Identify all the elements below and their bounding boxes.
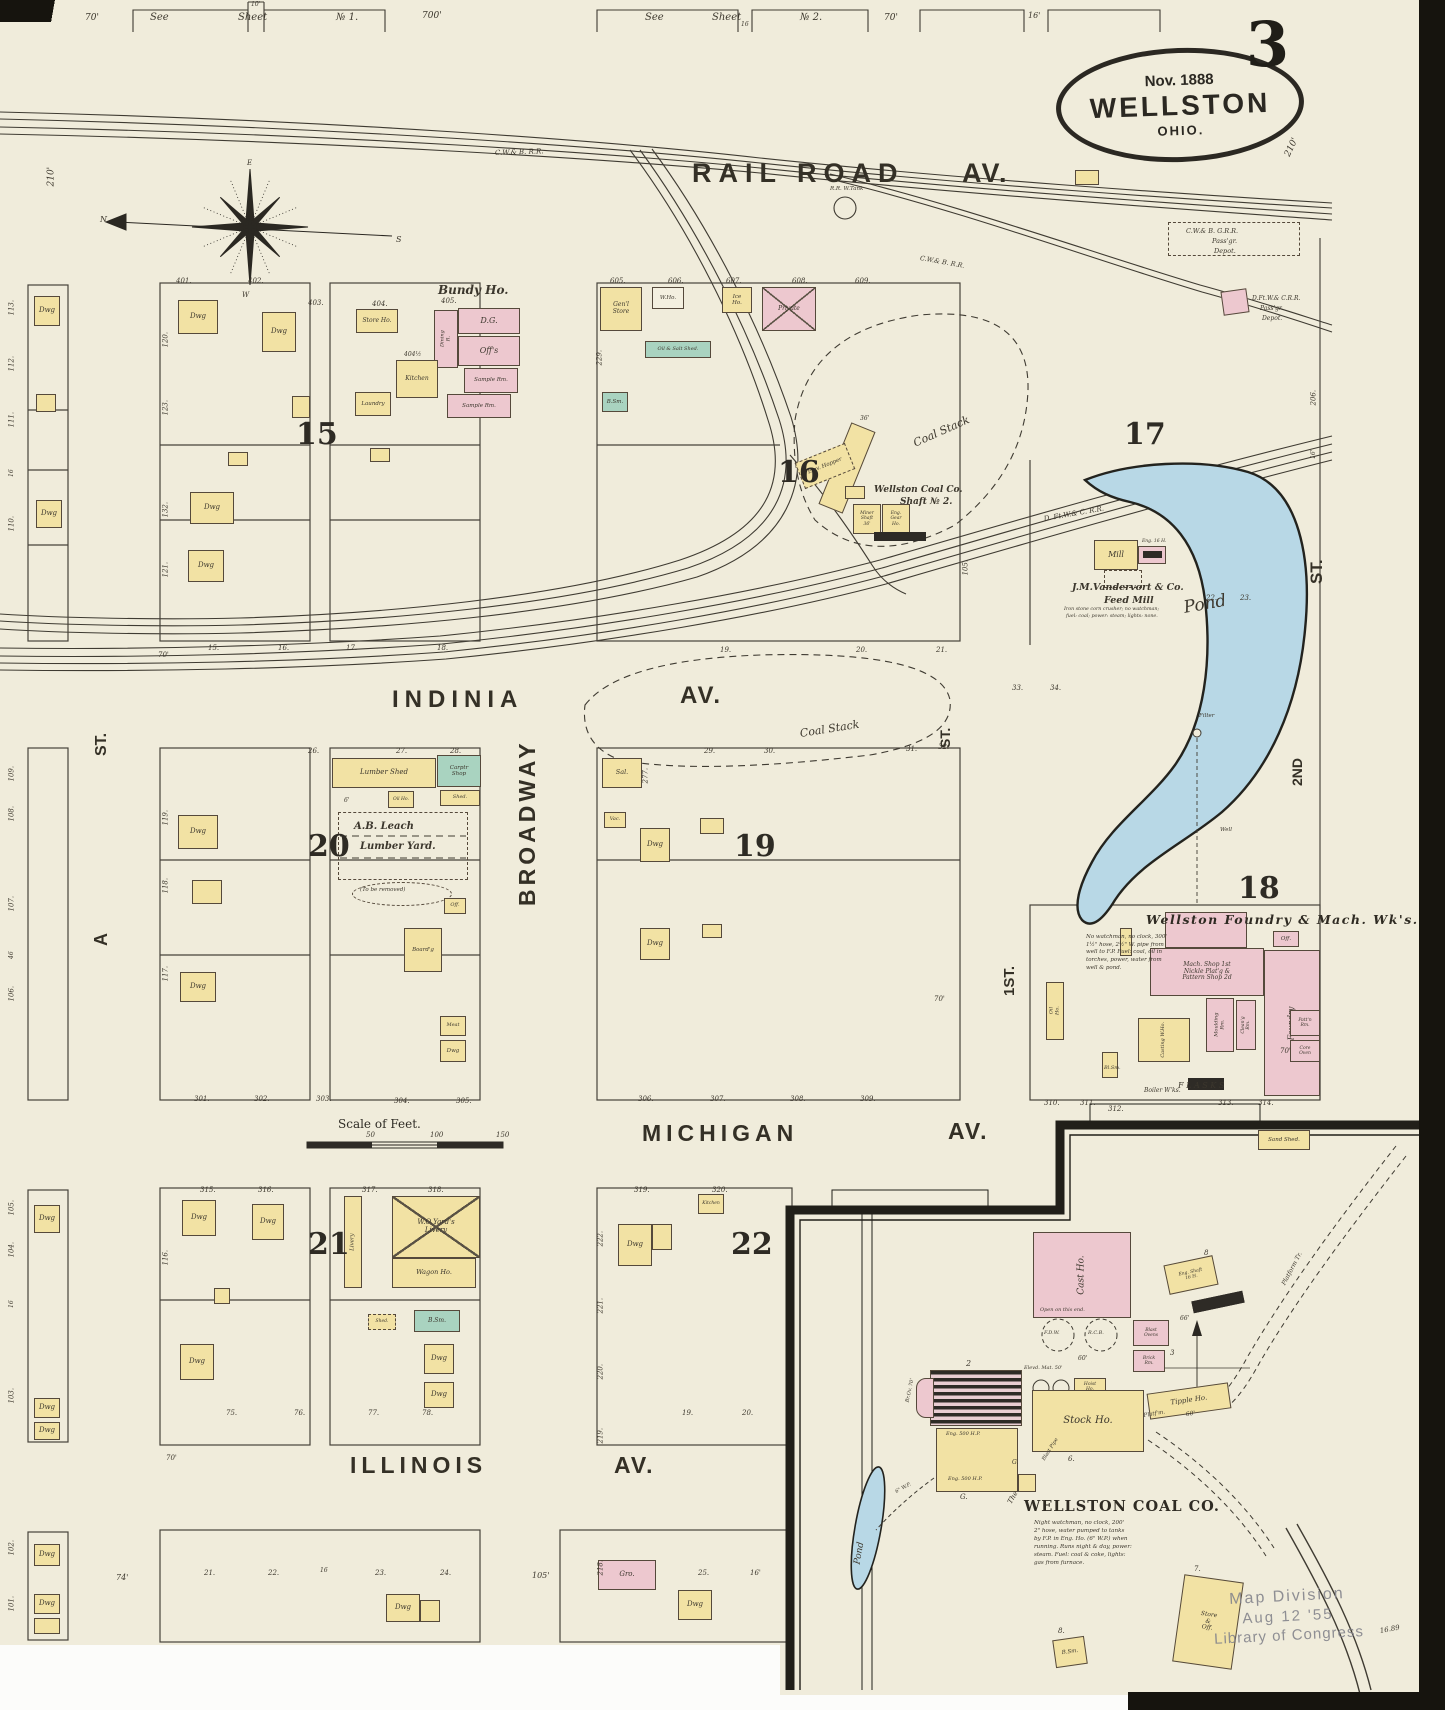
foundry-title: Wellston Foundry & Mach. Wk's. — [1146, 912, 1419, 927]
street-illinois-av: AV. — [614, 1454, 655, 1477]
map-annotation: 101. — [9, 1596, 16, 1612]
map-annotation: 105' — [532, 1572, 549, 1580]
map-annotation: 34. — [1050, 685, 1061, 692]
map-annotation: 319. — [634, 1187, 650, 1194]
building — [874, 532, 926, 541]
building-sample-rm-: Sample Rm. — [464, 368, 518, 393]
map-annotation: 16' — [1028, 12, 1040, 20]
inset-notes: Night watchman, no clock, 200'2" hose, w… — [1034, 1520, 1132, 1568]
map-annotation: 606. — [668, 278, 684, 285]
map-annotation: A.B. Leach — [354, 822, 414, 832]
building-moulding-rm-: Moulding Rm. — [1206, 998, 1234, 1052]
building-off-: Off. — [1273, 931, 1299, 947]
map-annotation: 109. — [9, 766, 16, 782]
map-annotation: 6' — [344, 798, 349, 804]
block-number-20: 20 — [308, 832, 350, 862]
building-dwg: Dwg — [178, 300, 218, 334]
badge-date: Nov. 1888 — [1144, 71, 1213, 90]
building-clean-g-rm-: Clean'g Rm. — [1236, 1000, 1256, 1050]
map-annotation: fuel: coal; power: steam; lights: none. — [1066, 615, 1158, 620]
map-annotation: Boiler W'ks. — [1144, 1088, 1181, 1094]
map-annotation: 403. — [308, 300, 324, 307]
map-annotation: N — [100, 216, 107, 224]
building-gro-: Gro. — [598, 1560, 656, 1590]
map-annotation: 19. — [682, 1410, 693, 1417]
map-annotation: 21. — [204, 1570, 215, 1577]
map-annotation: 111. — [9, 412, 16, 428]
building-b-sm-: B.Sm. — [414, 1310, 460, 1332]
map-annotation: 309. — [860, 1096, 876, 1103]
building-laundry: Laundry — [355, 392, 391, 416]
map-annotation: (To be removed) — [360, 888, 405, 894]
building — [1075, 170, 1099, 185]
building-private: Private — [762, 287, 816, 331]
map-annotation: 700' — [422, 12, 442, 21]
building-b-sm-: B.Sm. — [1052, 1636, 1088, 1668]
map-annotation: 20. — [856, 647, 867, 654]
map-annotation: Scale of Feet. — [338, 1118, 421, 1130]
map-annotation: 70' — [934, 996, 945, 1003]
map-annotation: 70' — [884, 14, 898, 23]
map-annotation: 206. — [1311, 390, 1318, 406]
sheet-number: 3 — [1246, 14, 1289, 76]
building — [1220, 288, 1249, 315]
map-annotation: Wellston Coal Co. — [874, 486, 963, 495]
building-blast-ovens: Blast Ovens — [1133, 1320, 1169, 1346]
building-carptr-shop: Carptr Shop — [437, 755, 481, 787]
map-annotation: Pass'gr. — [1212, 238, 1237, 245]
building-sal-: Sal. — [602, 758, 642, 788]
block-number-22: 22 — [731, 1230, 773, 1260]
map-annotation: Bl.Sm. — [1104, 1066, 1121, 1071]
foundry-notes: No watchman, no clock, 300'1½" hose, 2½"… — [1086, 934, 1167, 972]
map-annotation: 607. — [726, 278, 742, 285]
map-annotation: 320. — [712, 1187, 728, 1194]
map-annotation: Eng. 500 H.P. — [946, 1432, 980, 1437]
building-w-ho-: W.Ho. — [652, 287, 684, 309]
map-annotation: Elevd. Mat. 50' — [1024, 1366, 1062, 1371]
building-oil-ho-: Oil Ho. — [388, 791, 414, 808]
building-dwg: Dwg — [640, 828, 670, 862]
map-annotation: 303. — [316, 1096, 332, 1103]
building — [930, 1370, 1022, 1426]
map-annotation: Filter — [1199, 714, 1214, 720]
foundry-note-line-1: No watchman, no clock, 300' — [1086, 934, 1167, 942]
map-annotation: 113. — [9, 300, 16, 316]
map-annotation: 3 — [1170, 1350, 1174, 1357]
map-annotation: 78. — [422, 1410, 433, 1417]
map-annotation: 76. — [294, 1410, 305, 1417]
building-stock-ho-: Stock Ho. — [1032, 1390, 1144, 1452]
map-annotation: 107. — [9, 896, 16, 912]
street-first: 1ST. — [1002, 966, 1017, 996]
map-annotation: 110. — [9, 516, 16, 532]
street-first-st: ST. — [938, 728, 952, 748]
map-annotation: 60' — [1078, 1356, 1087, 1362]
map-annotation: 33. — [1012, 685, 1023, 692]
map-annotation: G. — [1012, 1460, 1019, 1466]
map-annotation: 23. — [1240, 595, 1251, 602]
map-annotation: 50 — [366, 1132, 375, 1139]
foundry-note-line-3: well to F.P. Fuel: coal, oil in — [1086, 949, 1167, 957]
building-dwg: Dwg — [182, 1200, 216, 1236]
to-be-removed-outline — [352, 882, 452, 906]
building-meat: Meat — [440, 1016, 466, 1036]
map-annotation: 105. — [9, 1200, 16, 1216]
street-rail-road-av: AV. — [962, 160, 1009, 187]
block-number-16: 16 — [778, 458, 820, 488]
map-annotation: № 1. — [336, 13, 358, 23]
map-annotation: 46 — [9, 951, 15, 959]
street-indinia-av: AV. — [680, 684, 722, 708]
building — [845, 486, 865, 499]
map-annotation: Pass'gr. — [1260, 306, 1283, 312]
map-annotation: 306. — [638, 1096, 654, 1103]
block-number-21: 21 — [308, 1230, 350, 1260]
inset-note-line-4: running. Runs night & day, power: — [1034, 1544, 1132, 1552]
foundry-note-line-2: 1½" hose, 2½" W. pipe from — [1086, 942, 1167, 950]
building — [292, 396, 310, 418]
map-annotation: 10' — [251, 2, 260, 8]
scale-bar — [307, 1142, 503, 1148]
building-dwg: Dwg — [34, 1544, 60, 1566]
building — [214, 1288, 230, 1304]
map-annotation: 26. — [308, 748, 319, 755]
building-kitchen: Kitchen — [396, 360, 438, 398]
building-dwg: Dwg — [188, 550, 224, 582]
map-annotation: 23. — [375, 1570, 386, 1577]
map-annotation: 404½ — [404, 352, 421, 358]
map-annotation: C.W.& B. G.R.R. — [1186, 228, 1238, 235]
street-indinia: INDINIA — [392, 688, 523, 712]
map-annotation: 229. — [597, 350, 604, 366]
map-annotation: 609. — [855, 278, 871, 285]
map-annotation: 106. — [9, 986, 16, 1002]
map-annotation: E — [247, 160, 252, 167]
scan-edge-right — [1419, 0, 1445, 1692]
map-annotation: 304. — [394, 1098, 410, 1105]
map-annotation: 132. — [163, 502, 170, 518]
map-annotation: 16' — [750, 1570, 761, 1577]
building — [652, 1224, 672, 1250]
inset-note-line-3: by F.P. in Eng. Ho. (6" W.P.) when — [1034, 1536, 1132, 1544]
map-annotation: 6. — [1068, 1456, 1075, 1463]
map-annotation: № 2. — [800, 13, 822, 23]
street-illinois: ILLINOIS — [350, 1454, 487, 1477]
foundry-note-line-4: torches, power, water from — [1086, 957, 1167, 965]
building — [700, 818, 724, 834]
inset-title: WELLSTON COAL CO. — [1024, 1498, 1220, 1515]
building-patt-n-rm-: Patt'n Rm. — [1290, 1010, 1320, 1036]
map-annotation: Feed Mill — [1104, 596, 1154, 606]
map-annotation: 102. — [9, 1540, 16, 1556]
inset-note-line-1: Night watchman, no clock, 200' — [1034, 1520, 1132, 1528]
building — [1143, 551, 1162, 558]
map-annotation: 70' — [166, 1455, 177, 1462]
map-annotation: Well — [1220, 828, 1232, 834]
map-annotation: 311. — [1080, 1100, 1096, 1107]
map-annotation: 74' — [116, 1574, 128, 1582]
building-dwg: Dwg — [678, 1590, 712, 1620]
building-off-: Off. — [444, 898, 466, 914]
map-annotation: 8. — [1058, 1628, 1065, 1635]
map-annotation: 312. — [1108, 1106, 1124, 1113]
map-annotation: 16 — [741, 22, 749, 28]
building — [36, 394, 56, 412]
map-annotation: 66' — [1180, 1316, 1189, 1322]
building-core-oven: Core Oven — [1290, 1040, 1320, 1062]
map-annotation: 16. — [278, 645, 289, 652]
map-geometry — [0, 0, 1445, 1710]
building-dwg: Dwg — [34, 1398, 60, 1418]
sanborn-map-sheet: DwgDwgDwgDwgDwgDwgStore Ho.Dining R.D.G.… — [0, 0, 1445, 1710]
street-michigan: MICHIGAN — [642, 1122, 798, 1145]
map-annotation: 316. — [258, 1187, 274, 1194]
building-shed-: Shed. — [440, 790, 480, 806]
map-annotation: 220. — [598, 1364, 605, 1380]
building — [936, 1428, 1018, 1492]
building-dwg: Dwg — [34, 296, 60, 326]
map-annotation: 20. — [742, 1410, 753, 1417]
map-annotation: 70' — [1280, 1048, 1291, 1055]
building-d-g-: D.G. — [458, 308, 520, 334]
map-annotation: 308. — [790, 1096, 806, 1103]
building-oil-ho-: Oil Ho. — [1046, 982, 1064, 1040]
map-annotation: 70' — [158, 652, 169, 659]
map-annotation: Depot. — [1214, 248, 1236, 255]
building — [702, 924, 722, 938]
map-annotation: 24. — [440, 1570, 451, 1577]
map-annotation: 605. — [610, 278, 626, 285]
building-oil-salt-shed-: Oil & Salt Shed. — [645, 341, 711, 358]
foundry-note-line-5: well & pond. — [1086, 965, 1167, 973]
map-annotation: R.C.B. — [1088, 1331, 1104, 1336]
building-store-ho-: Store Ho. — [356, 309, 398, 333]
building — [1018, 1474, 1036, 1492]
map-annotation: 19. — [720, 647, 731, 654]
map-annotation: 116. — [163, 1250, 170, 1266]
map-annotation: 210' — [48, 167, 57, 187]
building-dwg: Dwg — [262, 312, 296, 352]
block-number-18: 18 — [1238, 874, 1280, 904]
map-annotation: Eng. 500 H.P. — [948, 1477, 982, 1482]
map-annotation: 118. — [163, 878, 170, 894]
map-annotation: 301. — [194, 1096, 210, 1103]
map-annotation: 221. — [598, 1298, 605, 1314]
map-annotation: 310. — [1044, 1100, 1060, 1107]
inset-note-line-2: 2" hose, water pumped to tanks — [1034, 1528, 1132, 1536]
map-annotation: 108. — [9, 806, 16, 822]
map-annotation: 16 — [9, 469, 15, 477]
map-annotation: Bundy Ho. — [438, 284, 508, 296]
map-annotation: 16 — [9, 1300, 15, 1308]
map-annotation: 317. — [362, 1187, 378, 1194]
building-vac-: Vac. — [604, 812, 626, 828]
badge-state: OHIO. — [1157, 122, 1204, 139]
map-annotation: 117. — [163, 966, 170, 982]
building-dwg: Dwg — [180, 1344, 214, 1380]
building-dwg: Dwg — [424, 1344, 454, 1374]
map-annotation: J.M.Vandervort & Co. — [1072, 583, 1184, 593]
map-annotation: 150 — [496, 1132, 509, 1139]
map-annotation: G. — [960, 1494, 968, 1501]
map-annotation: 16' — [1311, 450, 1317, 459]
building-off-s: Off's — [458, 336, 520, 366]
block-number-15: 15 — [296, 420, 338, 450]
map-annotation: W — [242, 292, 249, 299]
building-casting-w-ho-: Casting W.Ho. — [1138, 1018, 1190, 1062]
building-dwg: Dwg — [440, 1040, 466, 1062]
building-brick-rm-: Brick Rm. — [1133, 1350, 1165, 1372]
map-annotation: 608. — [792, 278, 808, 285]
map-annotation: See — [150, 13, 169, 23]
map-annotation: 8 — [1204, 1250, 1208, 1257]
map-annotation: 120. — [163, 332, 170, 348]
building-dwg: Dwg — [190, 492, 234, 524]
building-board-g: Board'g — [404, 928, 442, 972]
block-number-17: 17 — [1124, 420, 1166, 450]
map-annotation: Iron stone corn crusher; no watchman; — [1064, 608, 1159, 613]
map-annotation: D.Ft.W.& C.R.R. — [1252, 296, 1300, 302]
street-second-st: ST. — [1308, 559, 1325, 584]
map-annotation: 315. — [200, 1187, 216, 1194]
map-annotation: 7. — [1194, 1566, 1201, 1573]
map-annotation: 218. — [598, 1560, 605, 1576]
map-annotation: 222. — [598, 1231, 605, 1247]
building-kitchen: Kitchen — [698, 1194, 724, 1214]
building-wagon-ho-: Wagon Ho. — [392, 1258, 476, 1288]
building — [370, 448, 390, 462]
street-a-st: ST. — [94, 733, 110, 756]
map-annotation: Shaft № 2. — [900, 498, 952, 507]
library-stamp: Map Division Aug 12 '55 Library of Congr… — [1197, 1583, 1380, 1648]
building-dwg: Dwg — [640, 928, 670, 960]
building-dwg: Dwg — [34, 1422, 60, 1440]
map-annotation: 402. — [248, 278, 264, 285]
map-annotation: 22. — [268, 1570, 279, 1577]
scan-edge-topleft — [0, 0, 96, 22]
map-annotation: Depot. — [1262, 316, 1282, 322]
map-annotation: 60' — [1186, 1411, 1196, 1418]
map-annotation: 121. — [163, 562, 170, 578]
building-dwg: Dwg — [424, 1382, 454, 1408]
map-annotation: 404. — [372, 301, 388, 308]
block-number-19: 19 — [734, 832, 776, 862]
street-broadway: BROADWAY — [516, 739, 539, 906]
map-annotation: 105. — [963, 560, 970, 576]
building — [228, 452, 248, 466]
map-annotation: 405. — [441, 298, 457, 305]
map-annotation: 123. — [163, 400, 170, 416]
map-annotation: 18. — [437, 645, 448, 652]
building-dwg: Dwg — [252, 1204, 284, 1240]
map-annotation: 119. — [163, 810, 170, 826]
map-annotation: 16 — [320, 1568, 328, 1574]
building-w-o-yard-s-livery: W.O.Yard's Livery — [392, 1196, 480, 1258]
street-rail-road: RAIL ROAD — [692, 160, 905, 187]
street-second: 2ND — [1290, 758, 1304, 786]
map-annotation: 401. — [176, 278, 192, 285]
map-annotation: 112. — [9, 356, 16, 372]
building — [420, 1600, 440, 1622]
building-lumber-shed: Lumber Shed — [332, 758, 436, 788]
building-sample-rm-: Sample Rm. — [447, 394, 511, 418]
building-dwg: Dwg — [36, 500, 62, 528]
map-annotation: 100 — [430, 1132, 443, 1139]
map-annotation: 28. — [450, 748, 461, 755]
inset-note-line-5: steam. Fuel: coal & coke, lights: — [1034, 1552, 1132, 1560]
building-eng-gear-ho-: Eng. Gear Ho. — [882, 504, 910, 534]
pond-shape — [1077, 464, 1306, 924]
map-annotation: F.D.W. — [1044, 1331, 1060, 1336]
building-ice-ho-: Ice Ho. — [722, 287, 752, 313]
building-dwg: Dwg — [34, 1594, 60, 1614]
street-a: A — [92, 933, 110, 946]
building-gen-l-store: Gen'l Store — [600, 287, 642, 331]
map-annotation: Sheet — [238, 13, 267, 23]
building-b-sm-: B.Sm. — [602, 392, 628, 412]
map-annotation: 307. — [710, 1096, 726, 1103]
map-annotation: 31. — [906, 746, 917, 753]
map-annotation: 305. — [456, 1098, 472, 1105]
inset-note-line-6: gas from furnace. — [1034, 1560, 1132, 1568]
map-annotation: 2 — [966, 1360, 971, 1368]
building — [916, 1378, 934, 1418]
map-annotation: 104. — [9, 1242, 16, 1258]
map-annotation: S — [396, 236, 401, 244]
map-annotation: 30. — [764, 748, 775, 755]
map-annotation: Open on this end. — [1040, 1308, 1085, 1313]
building-shed-: Shed. — [368, 1314, 396, 1330]
building — [192, 880, 222, 904]
building-cast-ho-: Cast Ho. — [1033, 1232, 1131, 1318]
building-dwg: Dwg — [180, 972, 216, 1002]
building — [34, 1618, 60, 1634]
badge-city: WELLSTON — [1089, 87, 1271, 125]
map-annotation: 27. — [396, 748, 407, 755]
map-annotation: 219. — [598, 1428, 605, 1444]
building-dwg: Dwg — [34, 1205, 60, 1233]
building-sand-shed-: Sand Shed. — [1258, 1130, 1310, 1150]
street-michigan-av: AV. — [948, 1120, 989, 1143]
map-annotation: 25. — [698, 1570, 709, 1577]
map-annotation: See — [645, 13, 664, 23]
map-annotation: 17. — [346, 645, 357, 652]
building-mach-shop-1st-nickle-plat-g-pattern-shop-2d: Mach. Shop 1st Nickle Plat'g & Pattern S… — [1150, 948, 1264, 996]
map-annotation: 77. — [368, 1410, 379, 1417]
map-annotation: 103. — [9, 1388, 16, 1404]
map-annotation: 29. — [704, 748, 715, 755]
building-dwg: Dwg — [386, 1594, 420, 1622]
map-annotation: 277. — [643, 768, 650, 784]
map-annotation: 313. — [1218, 1100, 1234, 1107]
building-mill: Mill — [1094, 540, 1138, 570]
map-annotation: Lumber Yard. — [360, 842, 436, 852]
map-annotation: 21. — [936, 647, 947, 654]
map-annotation: Eng. 16 H. — [1142, 540, 1166, 545]
map-annotation: 75. — [226, 1410, 237, 1417]
map-annotation: Sheet — [712, 13, 741, 23]
map-annotation: 36' — [860, 416, 869, 422]
map-annotation: 302. — [254, 1096, 270, 1103]
map-annotation: 15. — [208, 645, 219, 652]
building-dwg: Dwg — [618, 1224, 652, 1266]
map-annotation: F L A S K S — [1178, 1082, 1224, 1090]
building-dwg: Dwg — [178, 815, 218, 849]
map-annotation: 314. — [1258, 1100, 1274, 1107]
map-annotation: 318. — [428, 1187, 444, 1194]
compass-rose — [106, 168, 392, 287]
